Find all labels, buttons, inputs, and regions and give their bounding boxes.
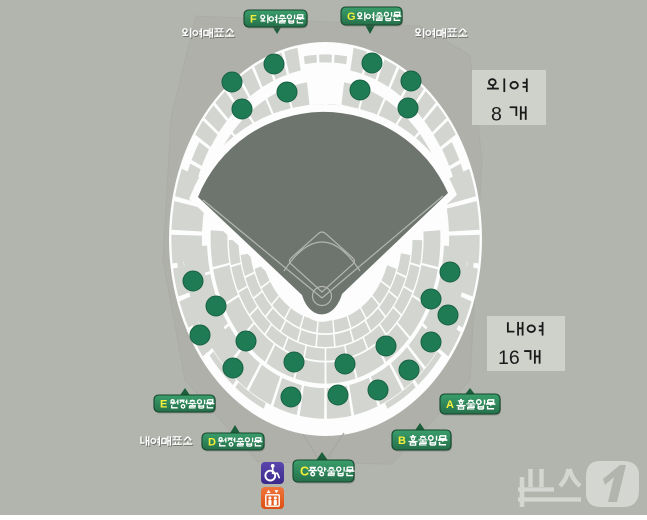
svg-text:B: B xyxy=(398,435,406,447)
svg-text:C: C xyxy=(300,465,309,479)
svg-text:E: E xyxy=(160,399,167,411)
svg-text:G: G xyxy=(347,11,356,23)
svg-text:A: A xyxy=(446,399,454,411)
svg-text:16: 16 xyxy=(498,347,520,369)
svg-text:F: F xyxy=(250,14,257,26)
svg-text:D: D xyxy=(208,437,216,449)
svg-text:8: 8 xyxy=(491,104,502,126)
